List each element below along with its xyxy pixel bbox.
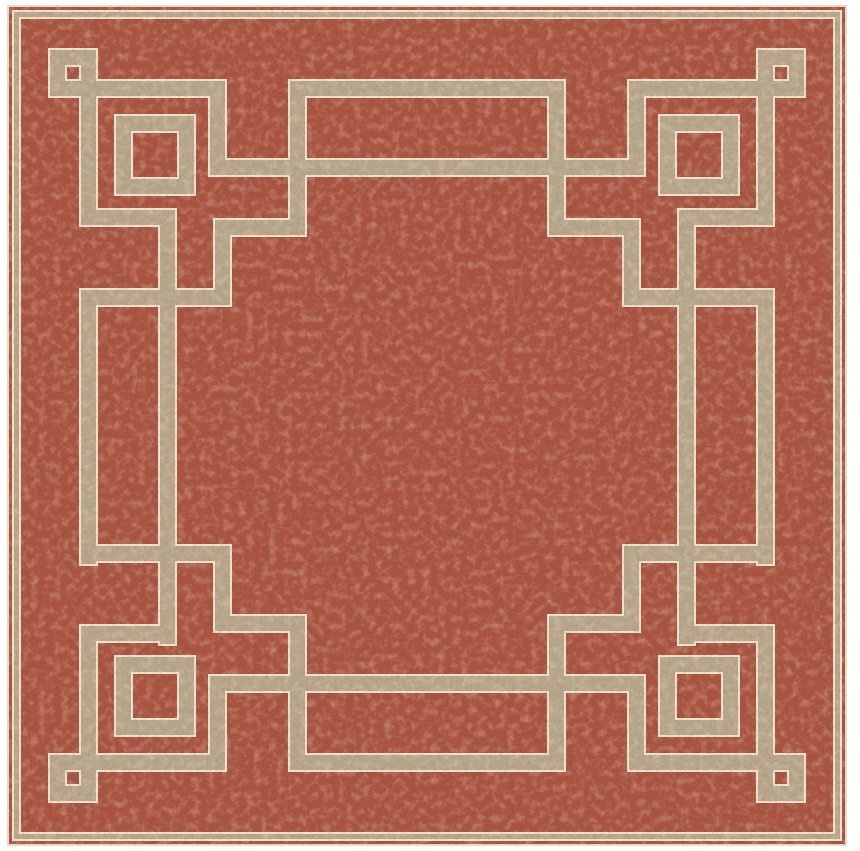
rug-product-photo — [0, 0, 860, 851]
fabric-texture-overlay — [8, 6, 846, 845]
rug-image — [0, 0, 860, 851]
